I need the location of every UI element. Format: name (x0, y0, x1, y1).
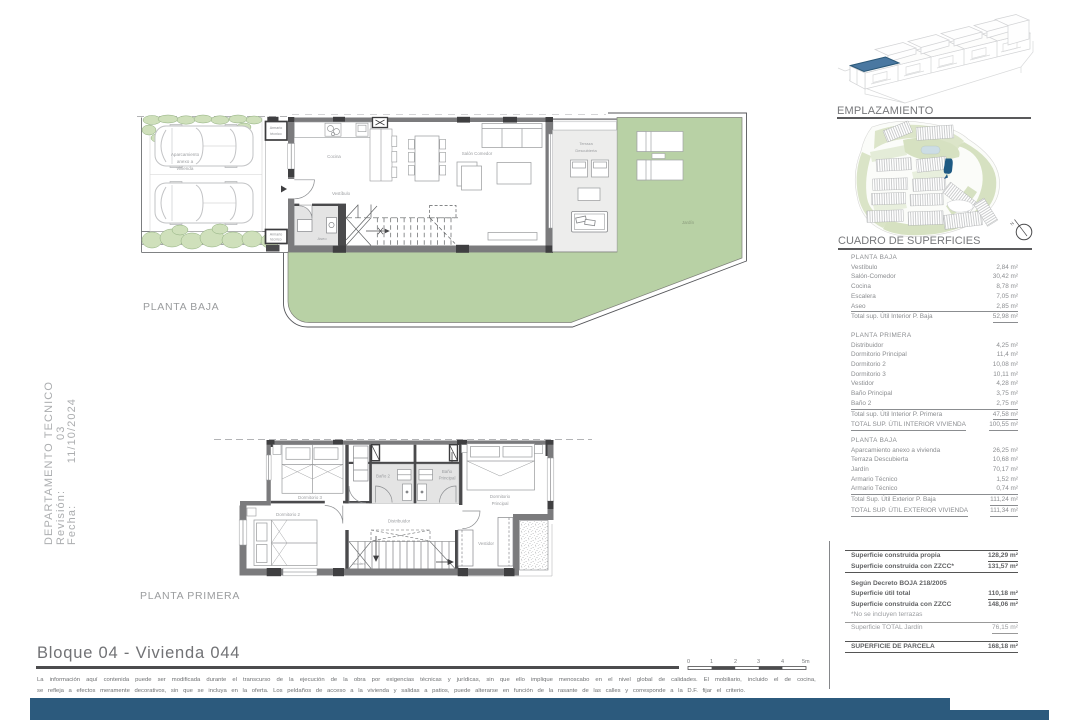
svg-text:Dormitorio 3: Dormitorio 3 (298, 495, 322, 500)
svg-text:Jardín: Jardín (682, 220, 695, 225)
svg-text:N: N (1009, 221, 1015, 227)
svg-text:anexo a: anexo a (177, 159, 194, 164)
svg-text:1: 1 (710, 659, 713, 665)
svg-text:5m: 5m (802, 659, 810, 665)
svg-text:Dormitorio 2: Dormitorio 2 (276, 512, 300, 517)
svg-text:Armario: Armario (270, 233, 283, 237)
svg-text:3: 3 (757, 659, 760, 665)
svg-text:Principal: Principal (439, 476, 456, 481)
svg-text:4: 4 (781, 659, 784, 665)
svg-text:Armario: Armario (270, 126, 283, 130)
svg-text:0: 0 (687, 659, 690, 665)
svg-text:Cocina: Cocina (327, 154, 341, 159)
svg-text:Dormitorio: Dormitorio (490, 494, 511, 499)
svg-text:Salón Comedor: Salón Comedor (462, 151, 493, 156)
svg-text:Principal: Principal (492, 501, 509, 506)
svg-text:técnico: técnico (270, 238, 281, 242)
svg-text:lavadero: lavadero (352, 562, 365, 566)
svg-text:Terraza: Terraza (579, 141, 593, 146)
svg-text:Vestíbulo: Vestíbulo (332, 191, 351, 196)
svg-text:Baño 2: Baño 2 (376, 474, 390, 479)
svg-text:2: 2 (734, 659, 737, 665)
svg-text:Distribuidor: Distribuidor (388, 519, 411, 524)
svg-text:Aparcamiento: Aparcamiento (171, 152, 200, 157)
svg-text:vivienda: vivienda (177, 166, 194, 171)
svg-text:Aseo: Aseo (317, 236, 327, 241)
svg-text:Baño: Baño (442, 469, 453, 474)
svg-text:Vestidor: Vestidor (478, 541, 494, 546)
svg-text:técnico: técnico (270, 132, 281, 136)
svg-text:Descubierta: Descubierta (575, 148, 597, 153)
